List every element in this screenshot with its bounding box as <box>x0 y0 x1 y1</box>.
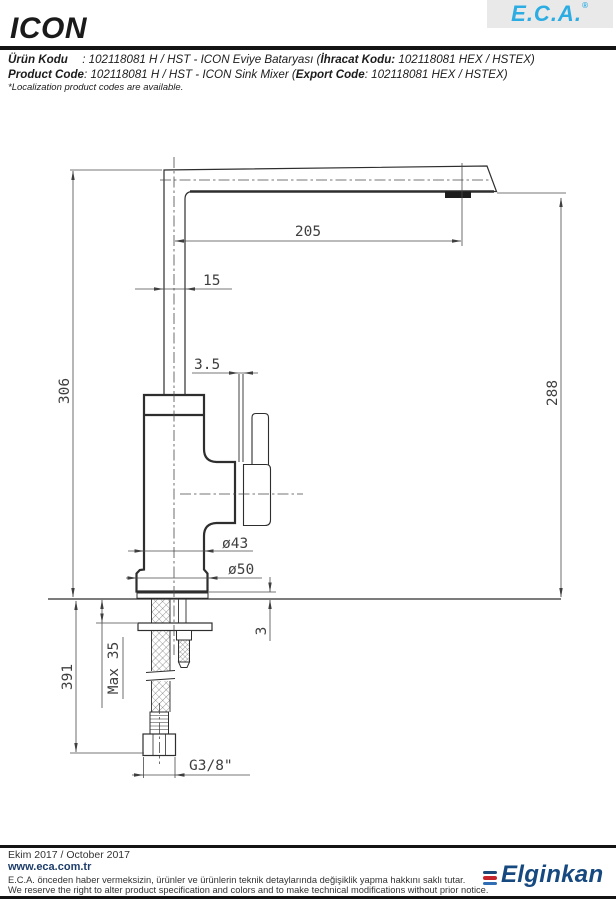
elginkan-bars-icon <box>483 871 497 885</box>
dim-total-height: 306 <box>57 378 73 404</box>
dim-thread: G3/8" <box>189 758 233 774</box>
dim-spout-reach: 205 <box>295 224 321 240</box>
footer-note-tr: E.C.A. önceden haber vermeksizin, ürünle… <box>8 875 465 885</box>
base-gasket <box>137 593 208 598</box>
elginkan-logo-text: Elginkan <box>501 861 603 889</box>
dim-max-mount: Max 35 <box>106 642 122 694</box>
stud-nut <box>177 631 192 641</box>
stud-thread <box>179 640 190 662</box>
mounting-plate <box>138 623 212 631</box>
dim-spout-tube: 15 <box>203 273 220 289</box>
body-outline <box>137 395 236 592</box>
hose-lower <box>152 681 171 712</box>
handle-base <box>244 465 271 526</box>
footer-url[interactable]: www.eca.com.tr <box>8 861 91 873</box>
dim-lever-blade: 3.5 <box>194 357 220 373</box>
page-bottom-border <box>0 896 616 900</box>
dim-base-plate: 3 <box>254 627 270 636</box>
elginkan-logo: Elginkan <box>483 861 603 889</box>
aerator <box>445 192 471 199</box>
hose-break <box>146 671 175 681</box>
hose-upper <box>152 599 171 671</box>
faucet-outline <box>48 166 561 756</box>
datasheet-page: ICON E.C.A.® Ürün Kodu : 102118081 H / H… <box>0 0 616 900</box>
dim-below-counter: 391 <box>60 664 76 690</box>
stud-tip <box>179 662 190 668</box>
dim-spout-height: 288 <box>545 380 561 406</box>
dimensions: 306 391 288 205 15 3.5 ø43 ø50 3 Max 35 … <box>57 163 566 778</box>
dim-body-diameter: ø43 <box>222 536 248 552</box>
mounting-stud <box>179 599 187 623</box>
footer-date: Ekim 2017 / October 2017 <box>8 849 130 861</box>
dim-base-diameter: ø50 <box>228 562 254 578</box>
footer-divider <box>0 845 616 848</box>
lever-blade <box>239 374 243 462</box>
handle-grip <box>252 414 269 466</box>
footer-note-en: We reserve the right to alter product sp… <box>8 885 488 895</box>
technical-drawing: 306 391 288 205 15 3.5 ø43 ø50 3 Max 35 … <box>0 0 616 900</box>
